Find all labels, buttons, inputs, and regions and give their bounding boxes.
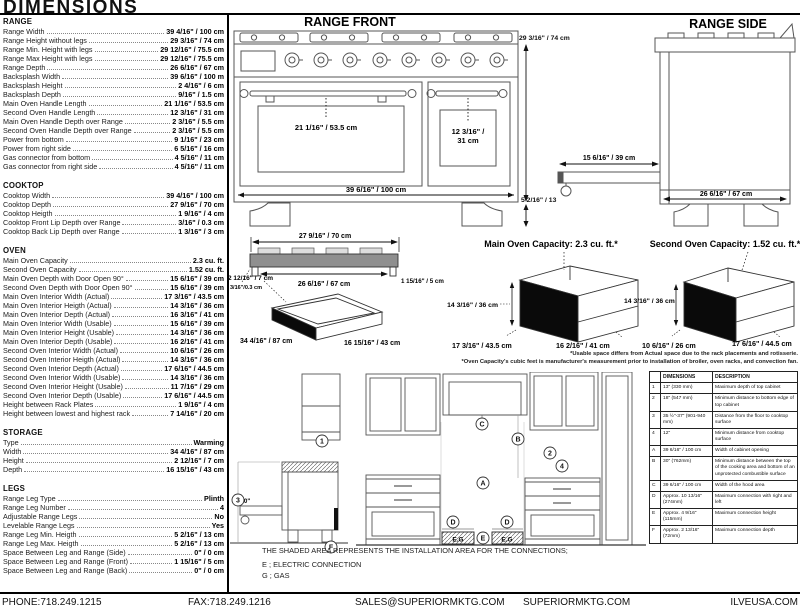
- spec-label: Backsplash Height: [3, 81, 63, 90]
- table-cell-dim: Approx. 2 13/16" (72mm): [661, 526, 713, 543]
- spec-row: Height between lowest and highest rack7 …: [3, 409, 224, 418]
- spec-row: Second Oven Handle Length12 3/16" / 31 c…: [3, 108, 224, 117]
- marker-B: B: [512, 433, 524, 445]
- spec-row: Backsplash Width39 6/16" / 100 m: [3, 72, 224, 81]
- spec-row: Width34 4/16" / 87 cm: [3, 447, 224, 456]
- spec-value: 14 3/16" / 36 cm: [170, 328, 224, 337]
- spec-label: Height between lowest and highest rack: [3, 409, 130, 418]
- table-row: 113" (330 mm)Maximum depth of top cabine…: [650, 383, 798, 394]
- spec-label: Space Between Leg and Range (Side): [3, 548, 126, 557]
- table-row: 335 ½"-37" (901-940 mm)Distance from the…: [650, 411, 798, 428]
- table-cell-ref: 3: [650, 411, 661, 428]
- dotted-leader: [123, 397, 162, 398]
- spec-value: 34 4/16" / 87 cm: [170, 447, 224, 456]
- storage-height-dim: 2 12/16" / 7 cm: [228, 275, 273, 282]
- spec-row: Power from bottom9 1/16" / 23 cm: [3, 135, 224, 144]
- reference-table: DIMENSIONS DESCRIPTION 113" (330 mm)Maxi…: [649, 371, 798, 544]
- spec-value: 0" / 0 cm: [194, 566, 224, 575]
- spec-value: 15 6/16" / 39 cm: [170, 319, 224, 328]
- spec-label: Main Oven Interior Heigth (Actual): [3, 301, 112, 310]
- table-cell-ref: 2: [650, 394, 661, 411]
- dotted-leader: [81, 545, 173, 546]
- storage-depth-dim: 16 15/16" / 43 cm: [344, 340, 400, 347]
- table-cell-desc: Width of the hood area: [713, 480, 798, 491]
- spec-label: Height: [3, 456, 24, 465]
- dotted-leader: [70, 262, 191, 263]
- spec-row: Range Max Height with legs29 12/16" / 75…: [3, 54, 224, 63]
- spec-value: 3/16" / 0.3 cm: [178, 218, 224, 227]
- dotted-leader: [79, 536, 173, 537]
- display-panel: [241, 51, 275, 71]
- spec-label: Second Oven Interior Heigth (Actual): [3, 355, 120, 364]
- spec-label: Range Width: [3, 27, 45, 36]
- spec-value: 2 4/16" / 6 cm: [178, 81, 224, 90]
- dotted-leader: [121, 370, 162, 371]
- second-oven-height-dim: 14 3/16" / 36 cm: [624, 298, 675, 305]
- spec-row: Range Depth26 6/16" / 67 cm: [3, 63, 224, 72]
- spec-label: Cooktop Heigth: [3, 209, 53, 218]
- second-oven-box: [684, 268, 794, 342]
- svg-text:4: 4: [560, 464, 564, 471]
- spec-label: Space Between Leg and Range (Front): [3, 557, 128, 566]
- spec-row: Gas connector from bottom4 5/16" / 11 cm: [3, 153, 224, 162]
- dotted-leader: [73, 150, 172, 151]
- spec-row: Space Between Leg and Range (Back)0" / 0…: [3, 566, 224, 575]
- side-back-leg: [744, 204, 778, 226]
- storage-drawer-box: [272, 294, 382, 340]
- spec-row: Backsplash Depth9/16" / 1.5 cm: [3, 90, 224, 99]
- footer-bar: PHONE:718.249.1215 FAX:718.249.1216 SALE…: [0, 592, 800, 610]
- spec-label: Height between Rack Plates: [3, 400, 93, 409]
- dotted-leader: [132, 415, 168, 416]
- spec-value: 10 6/16" / 26 cm: [170, 346, 224, 355]
- spec-row: Second Oven Interior Width (Actual)10 6/…: [3, 346, 224, 355]
- install-side-elevation: 0" 1 3 F: [230, 370, 355, 566]
- spec-value: 1 9/16" / 4 cm: [178, 209, 224, 218]
- spec-label: Second Oven Handle Length: [3, 108, 95, 117]
- spec-label: Backsplash Width: [3, 72, 60, 81]
- spec-row: Range Leg Max. Heigth5 2/16" / 13 cm: [3, 539, 224, 548]
- svg-text:D: D: [504, 520, 509, 527]
- spec-label: Backsplash Depth: [3, 90, 61, 99]
- table-cell-ref: E: [650, 509, 661, 526]
- spec-value: 1 9/16" / 4 cm: [178, 400, 224, 409]
- svg-text:B: B: [515, 437, 520, 444]
- dotted-leader: [92, 159, 173, 160]
- dotted-leader: [79, 518, 212, 519]
- dotted-leader: [122, 361, 168, 362]
- footer-email[interactable]: SALES@SUPERIORMKTG.COM: [355, 597, 505, 608]
- dotted-leader: [97, 114, 168, 115]
- spec-row: Main Oven Interior Heigth (Actual)14 3/1…: [3, 301, 224, 310]
- marker-4: 4: [556, 460, 568, 472]
- open-door: [558, 172, 660, 196]
- range-side-body: [558, 24, 795, 226]
- table-row: A39 6/16" / 100 cmWidth of cabinet openi…: [650, 446, 798, 457]
- range-side-drawing: RANGE SIDE 15 6/16" / 39 cm: [542, 14, 800, 228]
- spec-section: COOKTOPCooktop Width39 4/16" / 100 cmCoo…: [3, 181, 224, 236]
- marker-D-right: D: [501, 516, 513, 528]
- spec-label: Gas connector from right side: [3, 162, 97, 171]
- spec-row: Cooktop Depth27 9/16" / 70 cm: [3, 200, 224, 209]
- spec-label: Cooktop Depth: [3, 200, 51, 209]
- dotted-leader: [112, 316, 168, 317]
- marker-A: A: [477, 477, 489, 489]
- footnote-1: *Usable space differs from Actual space …: [420, 350, 798, 358]
- table-header-ref: [650, 372, 661, 383]
- spec-value: 1 3/16" / 3 cm: [178, 227, 224, 236]
- dotted-leader: [134, 132, 171, 133]
- table-cell-desc: Width of cabinet opening: [713, 446, 798, 457]
- table-cell-desc: Maximum connection with right and left: [713, 491, 798, 508]
- table-cell-dim: 13" (330 mm): [661, 383, 713, 394]
- footer-brand-site[interactable]: ILVEUSA.COM: [730, 597, 798, 608]
- eg-box-1-label: E.G: [452, 537, 463, 544]
- spec-row: Second Oven Interior Heigth (Actual)14 3…: [3, 355, 224, 364]
- spec-row: Main Oven Handle Length21 1/16" / 53.5 c…: [3, 99, 224, 108]
- door-open-dim: 15 6/16" / 39 cm: [583, 155, 635, 162]
- spec-section-title: RANGE: [3, 17, 224, 27]
- dotted-leader: [126, 280, 169, 281]
- spec-value: 39 6/16" / 100 m: [170, 72, 224, 81]
- spec-value: 14 3/16" / 36 cm: [170, 355, 224, 364]
- range-width-dim: 39 6/16" / 100 cm: [346, 185, 407, 194]
- dotted-leader: [135, 289, 169, 290]
- spec-row: Main Oven Interior Depth (Usable)16 2/16…: [3, 337, 224, 346]
- spec-label: Main Oven Interior Width (Actual): [3, 292, 109, 301]
- spec-value: 15 6/16" / 39 cm: [170, 274, 224, 283]
- table-cell-desc: Minimum distance from cooktop surface: [713, 428, 798, 445]
- spec-row: Range Leg Number4: [3, 503, 224, 512]
- svg-text:3: 3: [236, 498, 240, 505]
- table-row: FApprox. 2 13/16" (72mm)Maximum connecti…: [650, 526, 798, 543]
- spec-row: Main Oven Interior Width (Actual)17 3/16…: [3, 292, 224, 301]
- specs-column: RANGERange Width39 4/16" / 100 cmRange H…: [3, 17, 224, 585]
- spec-value: 4 5/16" / 11 cm: [175, 153, 224, 162]
- spec-value: 17 3/16" / 43.5 cm: [164, 292, 224, 301]
- spec-label: Range Leg Number: [3, 503, 66, 512]
- main-oven-capacity-drawing: Main Oven Capacity: 2.3 cu. ft.* 14 3/16…: [444, 236, 654, 361]
- spec-label: Main Oven Handle Length: [3, 99, 87, 108]
- spec-row: Cooktop Front Lip Depth over Range3/16" …: [3, 218, 224, 227]
- spec-label: Second Oven Handle Depth over Range: [3, 126, 132, 135]
- spec-label: Range Height without legs: [3, 36, 87, 45]
- dotted-leader: [95, 51, 159, 52]
- dotted-leader: [122, 379, 168, 380]
- install-front-shapes: [356, 372, 646, 545]
- spec-row: Second Oven Interior Height (Usable)11 7…: [3, 382, 224, 391]
- dotted-leader: [79, 271, 187, 272]
- second-oven-width-dim: 10 6/16" / 26 cm: [642, 341, 696, 350]
- spec-row: Second Oven Interior Depth (Actual)17 6/…: [3, 364, 224, 373]
- dotted-leader: [21, 444, 192, 445]
- spec-label: Main Oven Interior Width (Usable): [3, 319, 112, 328]
- spec-row: Space Between Leg and Range (Side)0" / 0…: [3, 548, 224, 557]
- spec-label: Main Oven Interior Height (Usable): [3, 328, 114, 337]
- dotted-leader: [99, 168, 172, 169]
- dotted-leader: [47, 33, 165, 34]
- spec-value: 17 6/16" / 44.5 cm: [164, 391, 224, 400]
- table-cell-dim: Approx. 4 9/16" (115mm): [661, 509, 713, 526]
- spec-value: 15 6/16" / 39 cm: [170, 283, 224, 292]
- main-oven-capacity-title: Main Oven Capacity: 2.3 cu. ft.*: [484, 239, 618, 249]
- table-cell-desc: Minimum distance to bottom edge of top c…: [713, 394, 798, 411]
- dotted-leader: [122, 224, 176, 225]
- marker-3: 3: [232, 494, 244, 506]
- spec-value: 6 5/16" / 16 cm: [174, 144, 224, 153]
- spec-section: RANGERange Width39 4/16" / 100 cmRange H…: [3, 17, 224, 171]
- second-handle-dim-line1: 12 3/16" /: [452, 127, 486, 136]
- footer-website[interactable]: SUPERIORMKTG.COM: [523, 597, 630, 608]
- spec-value: 29 12/16" / 75.5 cm: [160, 45, 224, 54]
- dotted-leader: [58, 500, 202, 501]
- spec-row: Height2 12/16" / 7 cm: [3, 456, 224, 465]
- spec-label: Cooktop Front Lip Depth over Range: [3, 218, 120, 227]
- spec-label: Levelable Range Legs: [3, 521, 75, 530]
- spec-value: 14 3/16" / 36 cm: [170, 301, 224, 310]
- marker-C: C: [476, 418, 488, 430]
- table-row: 412"Minimum distance from cooktop surfac…: [650, 428, 798, 445]
- spec-label: Power from bottom: [3, 135, 64, 144]
- spec-row: Cooktop Heigth1 9/16" / 4 cm: [3, 209, 224, 218]
- spec-value: 12 3/16" / 31 cm: [170, 108, 224, 117]
- spec-row: Cooktop Back Lip Depth over Range1 3/16"…: [3, 227, 224, 236]
- spec-label: Range Max Height with legs: [3, 54, 93, 63]
- spec-label: Second Oven Interior Width (Actual): [3, 346, 118, 355]
- spec-value: 39 4/16" / 100 cm: [166, 191, 224, 200]
- marker-1: 1: [316, 435, 328, 447]
- spec-label: Second Oven Interior Width (Usable): [3, 373, 120, 382]
- table-cell-ref: F: [650, 526, 661, 543]
- svg-text:1: 1: [320, 439, 324, 446]
- spec-value: 2 12/16" / 7 cm: [174, 456, 224, 465]
- spec-label: Main Oven Capacity: [3, 256, 68, 265]
- dotted-leader: [62, 78, 168, 79]
- dotted-leader: [128, 554, 193, 555]
- spec-value: 9/16" / 1.5 cm: [178, 90, 224, 99]
- spec-value: 16 15/16" / 43 cm: [166, 465, 224, 474]
- dotted-leader: [77, 527, 210, 528]
- spec-value: 7 14/16" / 20 cm: [170, 409, 224, 418]
- table-row: EApprox. 4 9/16" (115mm)Maximum connecti…: [650, 509, 798, 526]
- table-cell-desc: Maximum connection height: [713, 509, 798, 526]
- spec-value: 2 3/16" / 5.5 cm: [172, 126, 224, 135]
- spec-label: Depth: [3, 465, 22, 474]
- range-side-dimensions: 15 6/16" / 39 cm 26 6/16" / 67 cm: [559, 155, 787, 202]
- spec-row: Range Height without legs29 3/16" / 74 c…: [3, 36, 224, 45]
- install-note: THE SHADED AREA REPRESENTS THE INSTALLAT…: [262, 546, 654, 555]
- spec-value: 2.3 cu. ft.: [193, 256, 224, 265]
- table-row: DApprox. 10 13/16" (274mm)Maximum connec…: [650, 491, 798, 508]
- table-cell-ref: D: [650, 491, 661, 508]
- range-front-title: RANGE FRONT: [304, 15, 396, 29]
- backsplash-profile: [780, 24, 794, 38]
- spec-section-title: STORAGE: [3, 428, 224, 438]
- marker-E: E: [477, 532, 489, 544]
- spec-value: Plinth: [204, 494, 224, 503]
- spec-label: Range Leg Max. Heigth: [3, 539, 79, 548]
- spec-row: Adjustable Range LegsNo: [3, 512, 224, 521]
- spec-section: STORAGETypeWarmingWidth34 4/16" / 87 cmH…: [3, 428, 224, 474]
- spec-label: Main Oven Interior Depth (Usable): [3, 337, 112, 346]
- main-oven-height-dim: 14 3/16" / 36 cm: [447, 302, 498, 309]
- spec-value: 9 1/16" / 23 cm: [174, 135, 224, 144]
- dotted-leader: [52, 197, 164, 198]
- dotted-leader: [47, 69, 168, 70]
- spec-label: Range Depth: [3, 63, 45, 72]
- table-cell-dim: 12": [661, 428, 713, 445]
- main-handle-dim: 21 1/16" / 53.5 cm: [295, 123, 358, 132]
- main-oven-depth-dim: 16 2/16" / 41 cm: [556, 341, 610, 350]
- footer-fax: FAX:718.249.1216: [188, 597, 271, 608]
- main-oven-box: [520, 266, 638, 342]
- range-side-title: RANGE SIDE: [689, 17, 767, 31]
- spec-label: Range Leg Type: [3, 494, 56, 503]
- table-cell-dim: 39 6/16" / 100 cm: [661, 480, 713, 491]
- dotted-leader: [114, 343, 168, 344]
- marker-2: 2: [544, 447, 556, 459]
- dotted-leader: [125, 123, 170, 124]
- spec-row: Gas connector from right side4 5/16" / 1…: [3, 162, 224, 171]
- table-cell-ref: A: [650, 446, 661, 457]
- spec-sheet-page: DIMENSIONS RANGERange Width39 4/16" / 10…: [0, 0, 800, 610]
- main-oven-handle: [240, 90, 416, 103]
- svg-text:2: 2: [548, 451, 552, 458]
- control-knobs: [285, 53, 508, 67]
- footnote-2: *Oven Capacity's cubic feet is manufactu…: [420, 358, 798, 366]
- spec-label: Second Oven Interior Height (Usable): [3, 382, 123, 391]
- dotted-leader: [66, 141, 173, 142]
- table-cell-desc: Maximum depth of top cabinet: [713, 383, 798, 394]
- dotted-leader: [65, 87, 177, 88]
- dotted-leader: [89, 105, 163, 106]
- spec-value: 16 3/16" / 41 cm: [170, 310, 224, 319]
- spec-row: Main Oven Interior Height (Usable)14 3/1…: [3, 328, 224, 337]
- spec-row: Depth16 15/16" / 43 cm: [3, 465, 224, 474]
- spec-row: Second Oven Depth with Door Open 90°15 6…: [3, 283, 224, 292]
- table-cell-ref: 4: [650, 428, 661, 445]
- svg-text:C: C: [479, 422, 484, 429]
- spec-label: Second Oven Interior Depth (Actual): [3, 364, 119, 373]
- spec-row: Main Oven Interior Width (Usable)15 6/16…: [3, 319, 224, 328]
- spec-row: Main Oven Interior Depth (Actual)16 3/16…: [3, 310, 224, 319]
- spec-row: Cooktop Width39 4/16" / 100 cm: [3, 191, 224, 200]
- spec-row: Second Oven Handle Depth over Range2 3/1…: [3, 126, 224, 135]
- spec-row: TypeWarming: [3, 438, 224, 447]
- table-header-dimensions: DIMENSIONS: [661, 372, 713, 383]
- dotted-leader: [129, 572, 192, 573]
- storage-drawer-drawing: 2 12/16" / 7 cm 34 4/16" / 87 cm 16 15/1…: [228, 268, 408, 348]
- table-row: 218" (547 mm)Minimum distance to bottom …: [650, 394, 798, 411]
- table-row: B30" (762mm)Minimum distance between the…: [650, 457, 798, 480]
- spec-label: Space Between Leg and Range (Back): [3, 566, 127, 575]
- spec-label: Width: [3, 447, 21, 456]
- table-cell-ref: 1: [650, 383, 661, 394]
- spec-row: Power from right side6 5/16" / 16 cm: [3, 144, 224, 153]
- second-oven-capacity-title: Second Oven Capacity: 1.52 cu. ft.*: [650, 239, 800, 249]
- spec-value: 1.52 cu. ft.: [189, 265, 224, 274]
- spec-row: Height between Rack Plates1 9/16" / 4 cm: [3, 400, 224, 409]
- eg-box-2-label: E.G: [501, 537, 512, 544]
- table-cell-dim: Approx. 10 13/16" (274mm): [661, 491, 713, 508]
- install-front-elevation: E.G E.G C B 2 4 A D D: [356, 372, 646, 564]
- range-front-drawing: RANGE FRONT: [228, 14, 536, 228]
- table-header-row: DIMENSIONS DESCRIPTION: [650, 372, 798, 383]
- spec-label: Power from right side: [3, 144, 71, 153]
- legend-electric: E ; ELECTRIC CONNECTION: [262, 560, 361, 569]
- footer-phone: PHONE:718.249.1215: [2, 597, 102, 608]
- svg-text:E: E: [481, 536, 486, 543]
- spec-value: 29 12/16" / 75.5 cm: [160, 54, 224, 63]
- right-leg: [462, 203, 502, 226]
- spec-row: Main Oven Depth with Door Open 90°15 6/1…: [3, 274, 224, 283]
- second-oven-depth-dim: 17 6/16" / 44.5 cm: [732, 339, 792, 348]
- table-cell-desc: Maximum connection depth: [713, 526, 798, 543]
- main-oven-door: [240, 82, 422, 186]
- table-cell-dim: 35 ½"-37" (901-940 mm): [661, 411, 713, 428]
- spec-value: 29 3/16" / 74 cm: [170, 36, 224, 45]
- door-zero-dim: 0": [244, 499, 250, 505]
- dotted-leader: [24, 471, 164, 472]
- spec-row: Levelable Range LegsYes: [3, 521, 224, 530]
- spec-value: 16 2/16" / 41 cm: [170, 337, 224, 346]
- dotted-leader: [114, 307, 169, 308]
- spec-value: 39 4/16" / 100 cm: [166, 27, 224, 36]
- spec-label: Type: [3, 438, 19, 447]
- dotted-leader: [89, 42, 168, 43]
- spec-section: OVENMain Oven Capacity2.3 cu. ft.Second …: [3, 246, 224, 418]
- burner-grates: [240, 33, 512, 42]
- spec-label: Range Leg Min. Heigth: [3, 530, 77, 539]
- range-front-dimensions: 21 1/16" / 53.5 cm 12 3/16" / 31 cm 39 6…: [238, 44, 529, 227]
- spec-row: Range Min. Height with legs29 12/16" / 7…: [3, 45, 224, 54]
- spec-value: 4: [220, 503, 224, 512]
- install-side-shapes: [230, 374, 348, 543]
- table-header-description: DESCRIPTION: [713, 372, 798, 383]
- spec-label: Second Oven Depth with Door Open 90°: [3, 283, 133, 292]
- svg-text:A: A: [480, 481, 485, 488]
- dotted-leader: [26, 462, 172, 463]
- dotted-leader: [122, 233, 177, 234]
- svg-text:D: D: [450, 520, 455, 527]
- dotted-leader: [23, 453, 168, 454]
- dotted-leader: [116, 334, 168, 335]
- left-leg: [250, 203, 290, 226]
- dotted-leader: [95, 406, 176, 407]
- spec-value: No: [214, 512, 224, 521]
- dotted-leader: [95, 60, 159, 61]
- spec-value: 26 6/16" / 67 cm: [170, 63, 224, 72]
- spec-label: Second Oven Interior Depth (Usable): [3, 391, 121, 400]
- spec-section: LEGSRange Leg TypePlinthRange Leg Number…: [3, 484, 224, 575]
- second-oven-capacity-drawing: Second Oven Capacity: 1.52 cu. ft.* 14 3…: [624, 236, 800, 361]
- table-cell-ref: C: [650, 480, 661, 491]
- spec-row: Second Oven Interior Depth (Usable)17 6/…: [3, 391, 224, 400]
- spec-label: Main Oven Interior Depth (Actual): [3, 310, 110, 319]
- spec-row: Space Between Leg and Range (Front)1 15/…: [3, 557, 224, 566]
- spec-label: Second Oven Capacity: [3, 265, 77, 274]
- second-oven-handle: [427, 90, 507, 98]
- second-handle-dim-line2: 31 cm: [457, 136, 479, 145]
- spec-row: Range Leg TypePlinth: [3, 494, 224, 503]
- storage-width-dim: 34 4/16" / 87 cm: [240, 338, 292, 345]
- spec-value: 0" / 0 cm: [194, 548, 224, 557]
- table-cell-dim: 30" (762mm): [661, 457, 713, 480]
- spec-section-title: COOKTOP: [3, 181, 224, 191]
- spec-label: Main Oven Depth with Door Open 90°: [3, 274, 124, 283]
- table-cell-dim: 18" (547 mm): [661, 394, 713, 411]
- spec-label: Gas connector from bottom: [3, 153, 90, 162]
